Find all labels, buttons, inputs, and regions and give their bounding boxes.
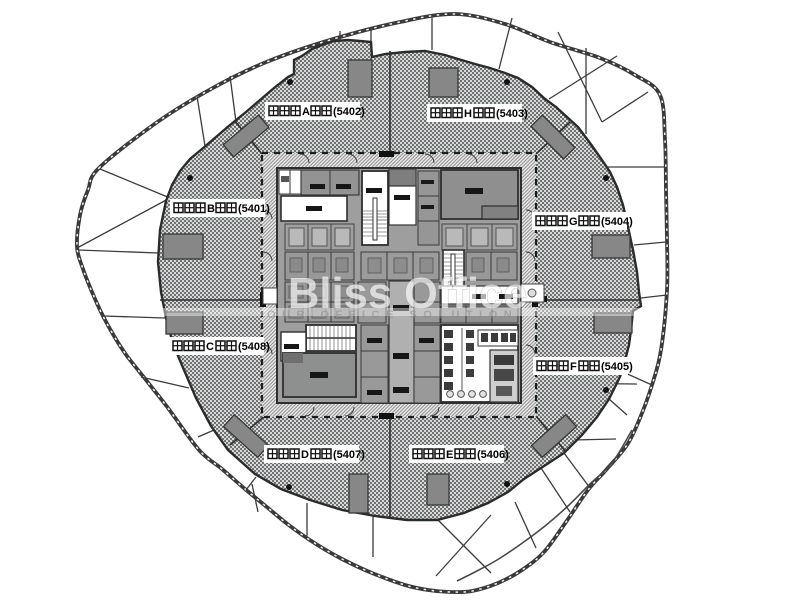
svg-text:H: H: [464, 108, 472, 120]
svg-text:C: C: [206, 341, 214, 353]
svg-text:F: F: [570, 361, 577, 373]
svg-text:(5402): (5402): [333, 106, 365, 118]
svg-text:(5404): (5404): [601, 216, 633, 228]
svg-text:(5403): (5403): [496, 108, 528, 120]
svg-text:G: G: [569, 216, 578, 228]
svg-text:(5407): (5407): [333, 449, 365, 461]
svg-text:Bliss Office: Bliss Office: [288, 270, 527, 318]
svg-text:(5405): (5405): [601, 361, 633, 373]
svg-text:(5406): (5406): [477, 449, 509, 461]
svg-text:(5408): (5408): [238, 341, 270, 353]
svg-text:D: D: [301, 449, 309, 461]
svg-text:E: E: [446, 449, 453, 461]
svg-text:B: B: [207, 203, 215, 215]
svg-text:A: A: [302, 106, 310, 118]
svg-text:(5401): (5401): [238, 203, 270, 215]
